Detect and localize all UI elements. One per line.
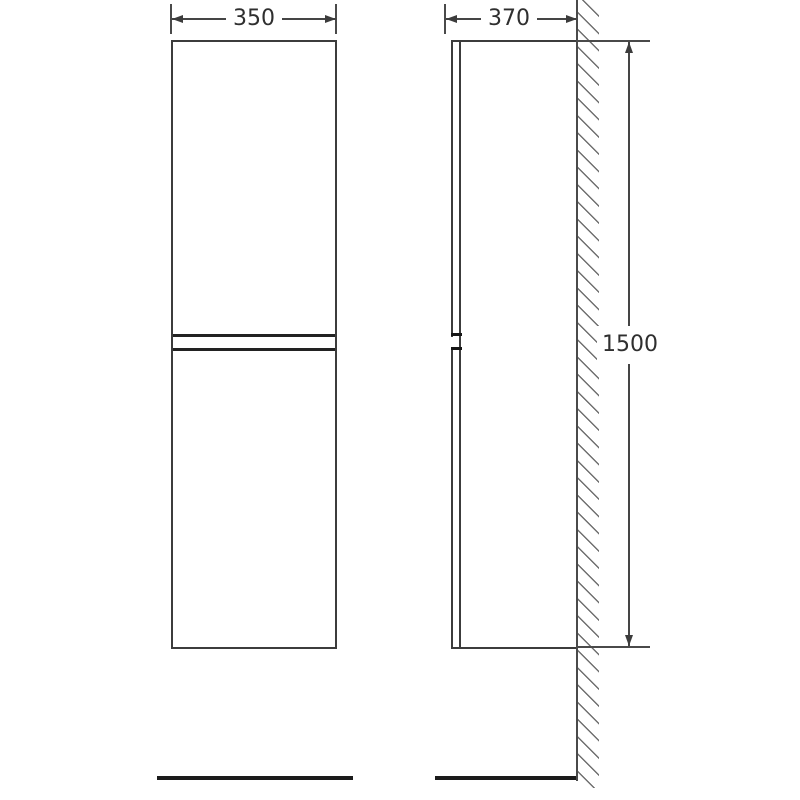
width-dimension-label: 350 <box>226 5 282 33</box>
depth-dim-arrow-left <box>446 15 457 23</box>
floor-line-side <box>435 776 577 780</box>
height-extension-line-top <box>577 40 650 42</box>
front-view-cabinet-outline <box>171 40 337 649</box>
depth-dimension-label: 370 <box>481 5 537 33</box>
width-dim-arrow-right <box>325 15 336 23</box>
wall-line <box>576 0 578 781</box>
drawing-canvas: 350 370 1500 <box>0 0 800 800</box>
wall-hatching <box>578 0 599 788</box>
side-view-cabinet-outline <box>451 40 578 649</box>
front-door-divider-upper-line <box>173 334 335 337</box>
height-dim-arrow-top <box>625 42 633 53</box>
width-dim-arrow-left <box>172 15 183 23</box>
height-extension-line-bottom <box>577 646 650 648</box>
side-door-back-edge-line <box>459 42 461 647</box>
height-dim-arrow-bottom <box>625 635 633 646</box>
side-door-gap-tick-lower <box>451 347 462 350</box>
height-dimension-label: 1500 <box>597 326 663 364</box>
floor-line-front <box>157 776 353 780</box>
side-door-gap-tick-upper <box>451 333 462 336</box>
front-door-divider-lower-line <box>173 348 335 351</box>
